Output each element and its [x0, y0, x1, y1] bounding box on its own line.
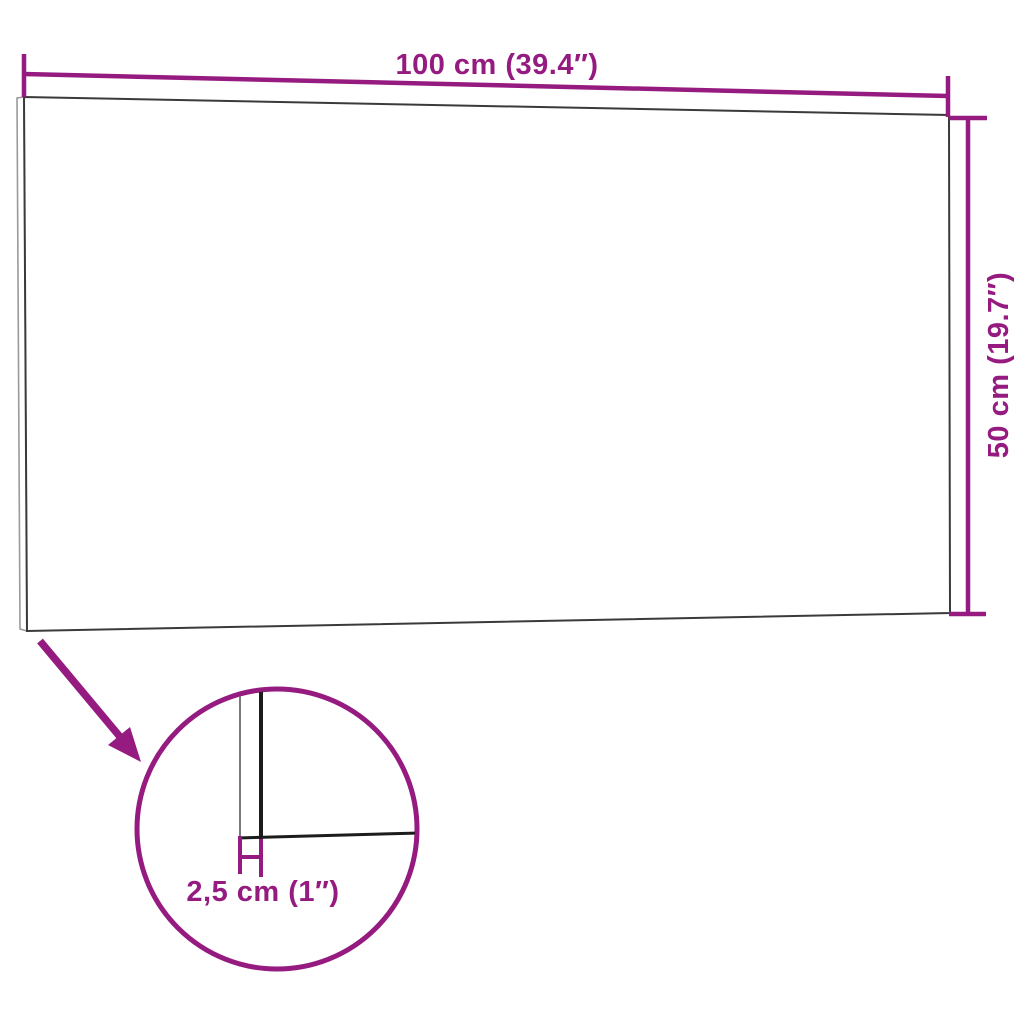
width-dim-label: 100 cm (39.4″) [395, 49, 598, 81]
detail-circle [137, 689, 417, 969]
dimension-diagram: 100 cm (39.4″) 50 cm (19.7″) [0, 0, 1024, 1024]
zoom-callout-arrow [40, 641, 141, 762]
zoom-arrow-shaft [40, 641, 121, 738]
thickness-dim-label: 2,5 cm (1″) [186, 876, 339, 908]
product-dimension-image: 100 cm (39.4″) 50 cm (19.7″) [0, 0, 1024, 1024]
panel-front-face [24, 97, 950, 631]
height-dim-label: 50 cm (19.7″) [983, 272, 1015, 458]
height-dimension: 50 cm (19.7″) [949, 118, 1015, 614]
thickness-detail-callout: 2,5 cm (1″) [137, 686, 418, 969]
